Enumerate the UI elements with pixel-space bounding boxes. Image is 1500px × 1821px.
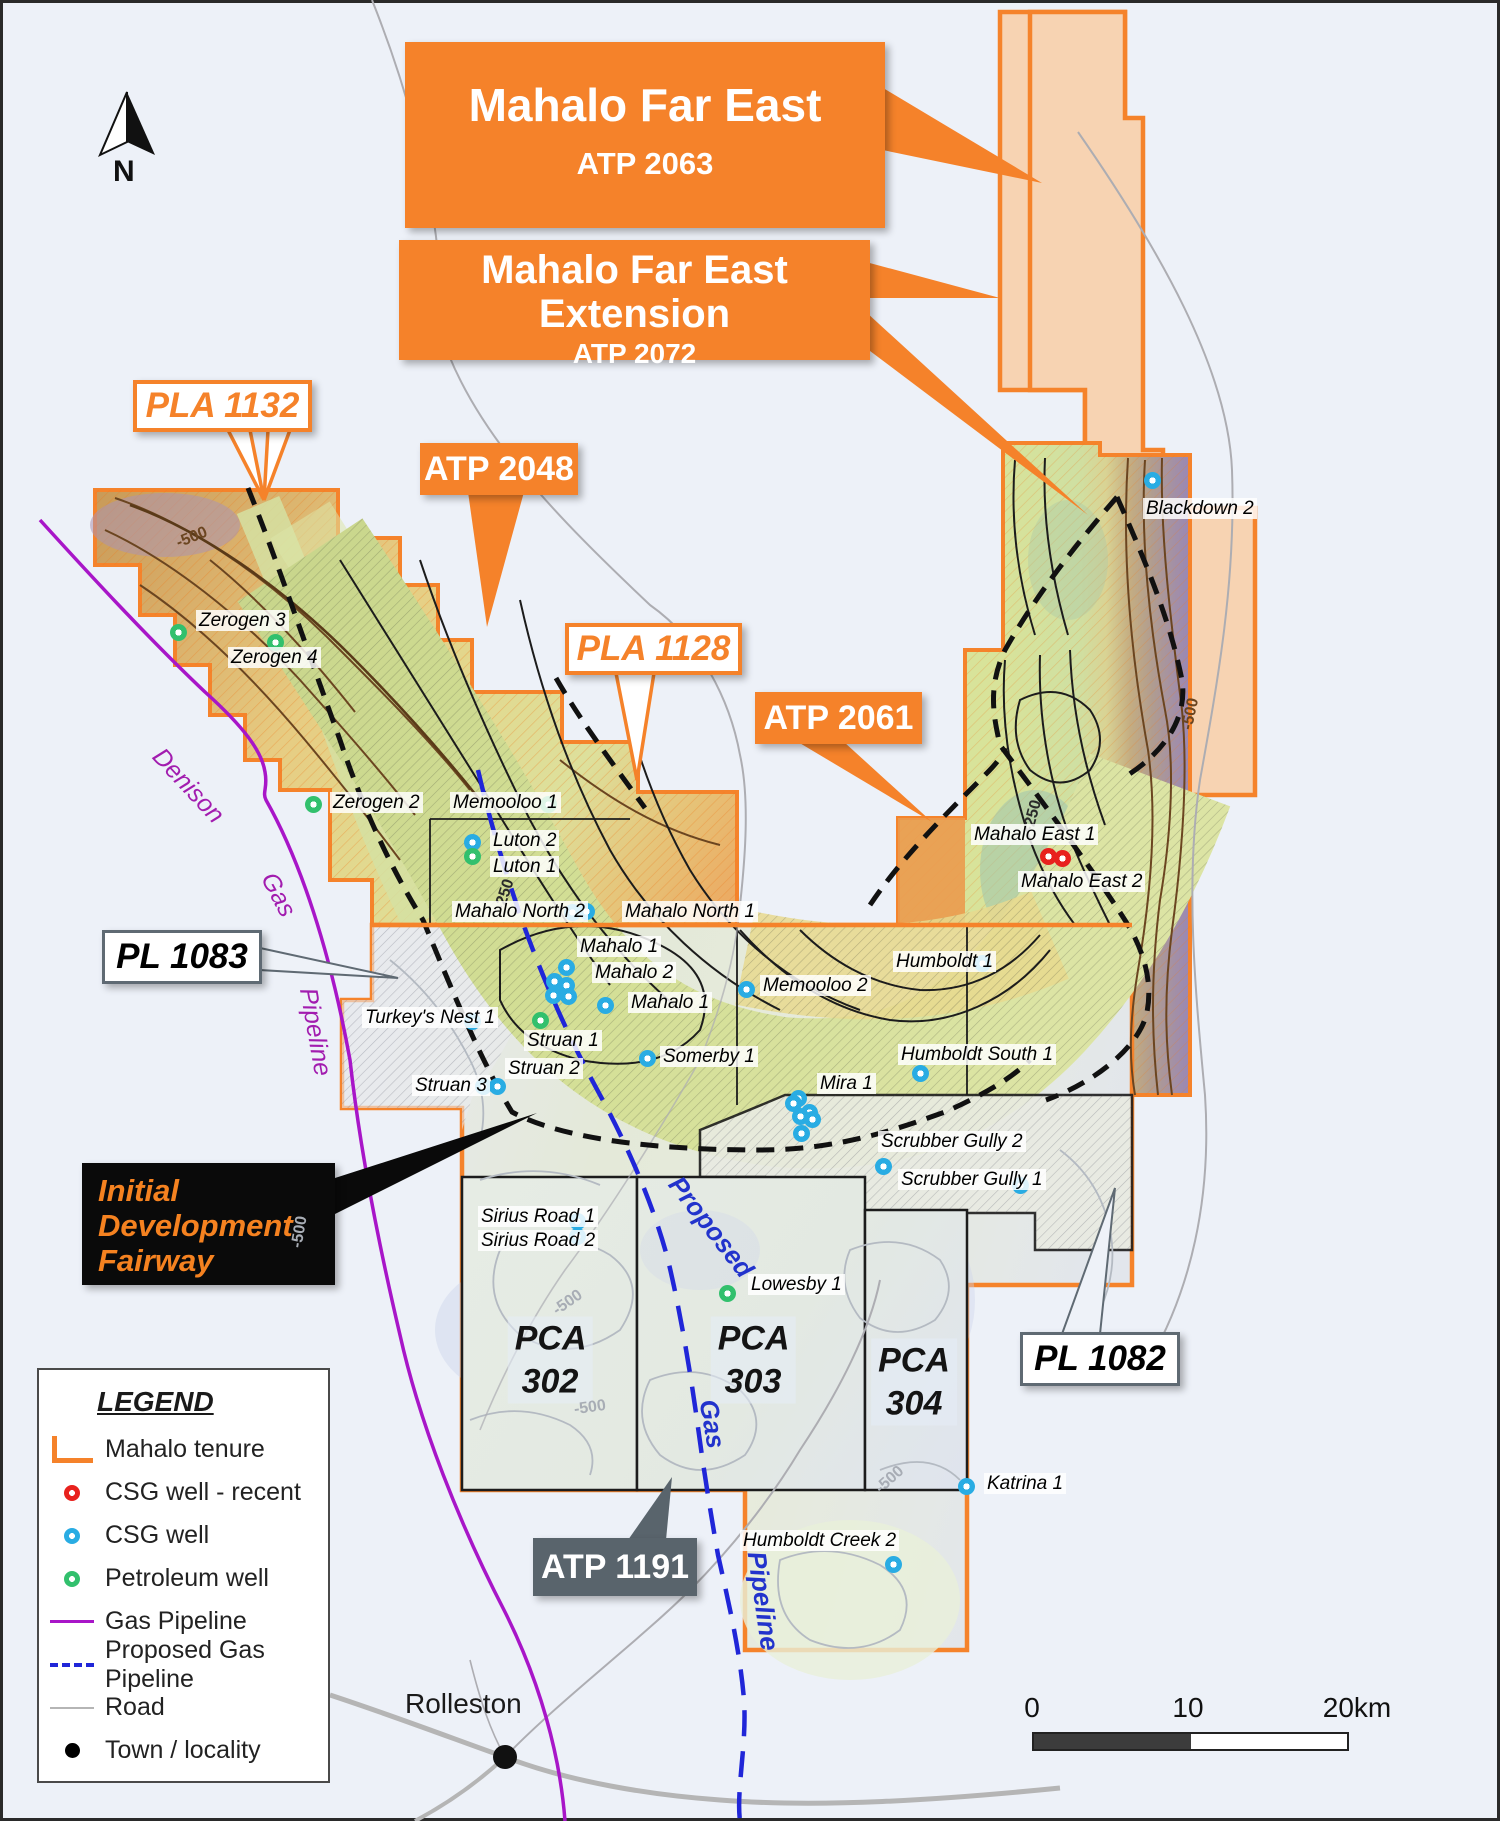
well-label: Luton 2 (490, 830, 559, 851)
legend-item: CSG well - recent (39, 1471, 328, 1514)
legend-item-label: Petroleum well (105, 1564, 269, 1593)
well-marker-csg (793, 1125, 810, 1142)
legend-item-icon (39, 1571, 105, 1587)
well-label: Katrina 1 (984, 1473, 1066, 1494)
legend-item-icon (39, 1743, 105, 1758)
callout-pl-1083: PL 1083 (102, 930, 262, 984)
well-label: Memooloo 1 (450, 792, 561, 813)
town-dot (493, 1745, 517, 1769)
legend-item: Mahalo tenure (39, 1428, 328, 1471)
well-label: Lowesby 1 (748, 1274, 845, 1295)
well-label: Zerogen 3 (196, 610, 289, 631)
csg-recent-well-icon (64, 1485, 80, 1501)
well-marker-csg (804, 1111, 821, 1128)
well-marker-csg (1144, 472, 1161, 489)
callout-label: PL 1082 (1034, 1339, 1166, 1378)
well-label: Struan 2 (505, 1058, 583, 1079)
scalebar (1032, 1732, 1349, 1751)
legend-item-label: CSG well (105, 1521, 209, 1550)
town-icon (65, 1743, 80, 1758)
callout-pl-1082: PL 1082 (1020, 1332, 1180, 1386)
callout-mahalo-far-east: Mahalo Far East ATP 2063 (405, 42, 885, 228)
well-marker-csg (489, 1078, 506, 1095)
tenure-line-icon (52, 1436, 93, 1463)
well-marker-csg (958, 1478, 975, 1495)
legend-item-icon (39, 1663, 105, 1667)
callout-label: PLA 1128 (577, 629, 731, 668)
callout-title: Mahalo Far East Extension (399, 248, 870, 336)
legend-item: Town / locality (39, 1729, 328, 1772)
well-marker-csg (912, 1065, 929, 1082)
well-label: Mahalo North 2 (452, 901, 588, 922)
well-marker-csg (597, 997, 614, 1014)
well-label: Struan 3 (412, 1075, 490, 1096)
callout-pla-1128: PLA 1128 (565, 623, 742, 675)
callout-title: Mahalo Far East (405, 78, 885, 132)
legend-item: CSG well (39, 1514, 328, 1557)
callout-code: ATP 2072 (399, 338, 870, 370)
well-label: Scrubber Gully 2 (878, 1131, 1026, 1152)
north-label: N (113, 155, 135, 189)
well-marker-petroleum (464, 848, 481, 865)
well-label: Zerogen 4 (228, 647, 321, 668)
legend-item: Petroleum well (39, 1557, 328, 1600)
region-label: PCA 302 (508, 1317, 593, 1404)
callout-label: PLA 1132 (146, 386, 300, 425)
well-label: Sirius Road 2 (478, 1230, 598, 1251)
well-marker-csg (560, 988, 577, 1005)
well-marker-petroleum (532, 1012, 549, 1029)
legend-item-icon (39, 1485, 105, 1501)
legend-item-label: Mahalo tenure (105, 1435, 265, 1464)
callout-label: ATP 2061 (764, 699, 914, 737)
legend-item-label: Proposed Gas Pipeline (105, 1636, 328, 1694)
well-marker-csg (558, 959, 575, 976)
legend-item-label: Road (105, 1693, 165, 1722)
callout-label: Initial Development Fairway (98, 1173, 308, 1278)
well-label: Mahalo 2 (592, 962, 676, 983)
well-marker-csg_recent (1054, 850, 1071, 867)
road-icon (50, 1707, 94, 1709)
well-marker-csg (639, 1050, 656, 1067)
callout-label: ATP 1191 (541, 1548, 689, 1586)
well-marker-petroleum (719, 1285, 736, 1302)
legend-item-icon (39, 1620, 105, 1623)
legend-item-icon (39, 1436, 105, 1463)
csg-well-icon (64, 1528, 80, 1544)
callout-atp-2048: ATP 2048 (420, 443, 578, 495)
legend-item: Proposed Gas Pipeline (39, 1643, 328, 1686)
well-label: Sirius Road 1 (478, 1206, 598, 1227)
legend-item-label: Town / locality (105, 1736, 261, 1765)
well-label: Turkey's Nest 1 (362, 1007, 498, 1028)
well-marker-petroleum (170, 624, 187, 641)
proposed-gas-pipeline-icon (50, 1663, 94, 1667)
map-page: Mahalo Far East ATP 2063 Mahalo Far East… (0, 0, 1500, 1821)
region-label: PCA 304 (871, 1339, 957, 1426)
well-label: Scrubber Gully 1 (898, 1169, 1046, 1190)
well-label: Humboldt Creek 2 (740, 1530, 899, 1551)
petroleum-well-icon (64, 1571, 80, 1587)
legend-title: LEGEND (97, 1386, 328, 1418)
well-label: Mahalo 1 (577, 936, 661, 957)
scalebar-label: 20km (1323, 1692, 1391, 1724)
well-marker-petroleum (305, 796, 322, 813)
well-label: Somerby 1 (660, 1046, 758, 1067)
region-label: PCA 303 (711, 1317, 796, 1404)
legend-panel: LEGEND Mahalo tenureCSG well - recentCSG… (37, 1368, 330, 1783)
well-label: Mahalo East 1 (971, 824, 1098, 845)
legend-item-icon (39, 1528, 105, 1544)
well-label: Humboldt 1 (893, 951, 996, 972)
well-marker-csg (875, 1158, 892, 1175)
well-label: Blackdown 2 (1143, 498, 1257, 519)
gas-pipeline-icon (50, 1620, 94, 1623)
well-label: Memooloo 2 (760, 975, 871, 996)
legend-item-icon (39, 1707, 105, 1709)
town-label: Rolleston (405, 1688, 522, 1720)
well-label: Mahalo East 2 (1018, 871, 1145, 892)
callout-code: ATP 2063 (405, 146, 885, 182)
callout-atp-2061: ATP 2061 (755, 692, 922, 744)
callout-pla-1132: PLA 1132 (133, 380, 312, 432)
well-marker-csg (738, 981, 755, 998)
callout-label: ATP 2048 (424, 450, 574, 488)
north-arrow-icon (100, 92, 155, 155)
callout-atp-1191: ATP 1191 (533, 1538, 697, 1596)
well-label: Mira 1 (817, 1073, 876, 1094)
well-label: Zerogen 2 (330, 792, 423, 813)
well-label: Struan 1 (524, 1030, 602, 1051)
callout-mahalo-far-east-extension: Mahalo Far East Extension ATP 2072 (399, 240, 870, 360)
well-label: Mahalo 1 (628, 992, 712, 1013)
scalebar-label: 10 (1172, 1692, 1203, 1724)
well-label: Luton 1 (490, 856, 559, 877)
scalebar-label: 0 (1024, 1692, 1040, 1724)
well-label: Humboldt South 1 (898, 1044, 1056, 1065)
legend-item-label: Gas Pipeline (105, 1607, 247, 1636)
callout-label: PL 1083 (116, 937, 248, 976)
well-label: Mahalo North 1 (622, 901, 758, 922)
well-marker-csg (885, 1556, 902, 1573)
legend-item-label: CSG well - recent (105, 1478, 301, 1507)
well-marker-csg (545, 987, 562, 1004)
